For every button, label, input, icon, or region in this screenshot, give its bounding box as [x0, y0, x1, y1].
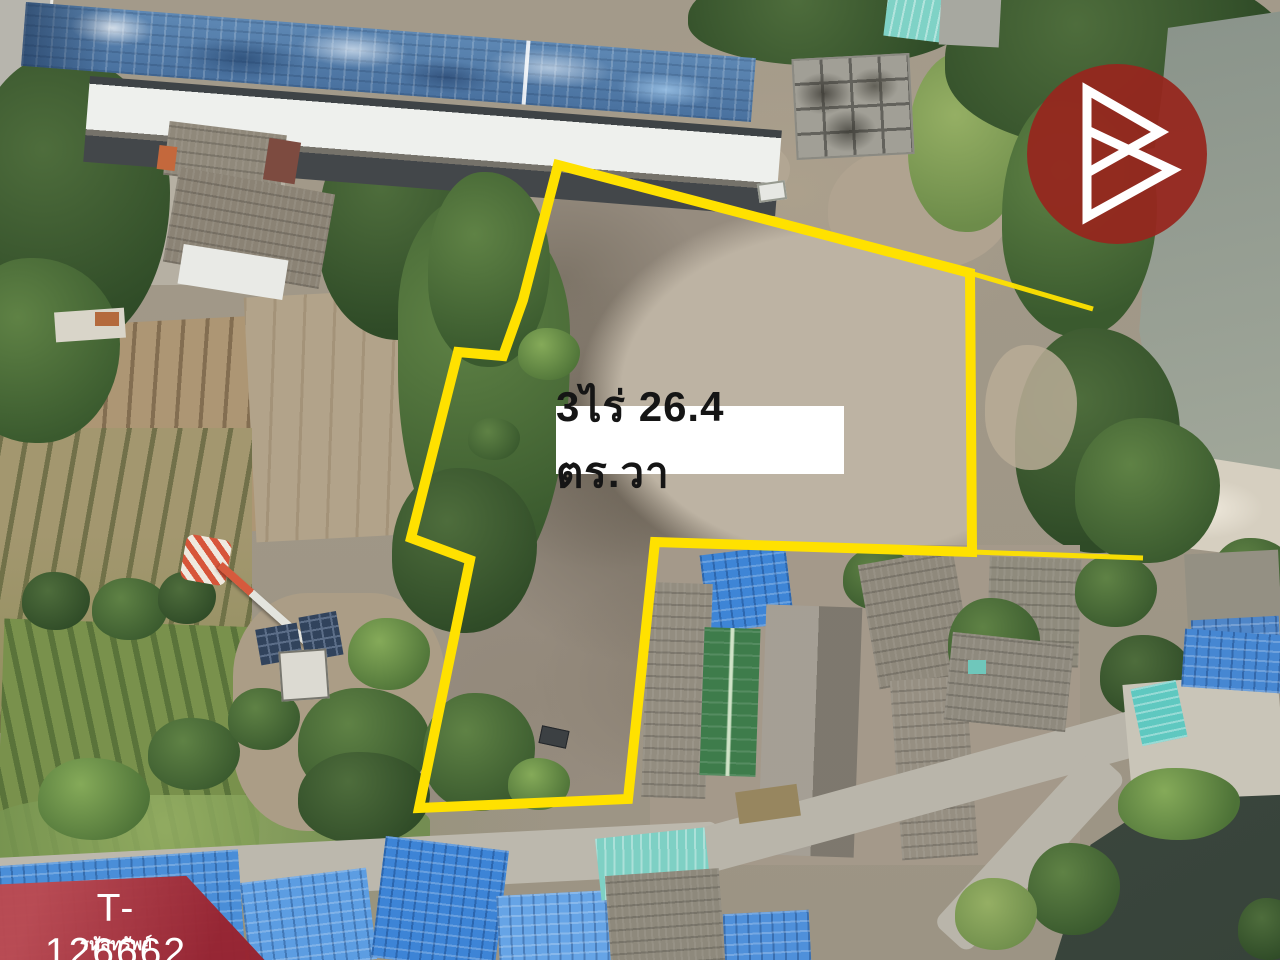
- aerial-listing-photo: 3ไร่ 26.4 ตร.วา T-126662 รหัสทรัพย์: [0, 0, 1280, 960]
- boundary-extension-lines: [970, 273, 1143, 558]
- area-label: 3ไร่ 26.4 ตร.วา: [556, 406, 844, 474]
- property-code-caption: รหัสทรัพย์: [30, 931, 202, 958]
- brand-logo: [1027, 64, 1207, 244]
- brand-logo-b-triangles-icon: [1027, 64, 1207, 244]
- area-label-text: 3ไร่ 26.4 ตร.วา: [556, 374, 844, 506]
